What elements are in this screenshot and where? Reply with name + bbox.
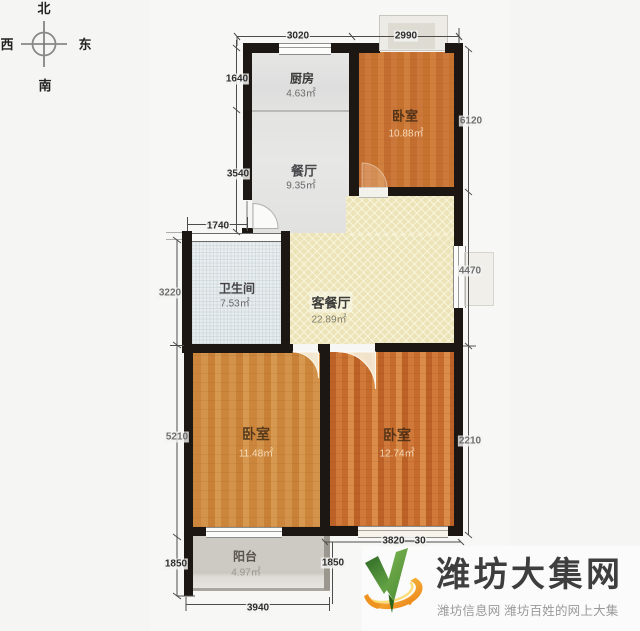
- svg-text:南: 南: [38, 78, 51, 93]
- svg-text:东: 东: [78, 37, 91, 52]
- svg-text:西: 西: [0, 37, 13, 52]
- svg-text:北: 北: [37, 1, 50, 16]
